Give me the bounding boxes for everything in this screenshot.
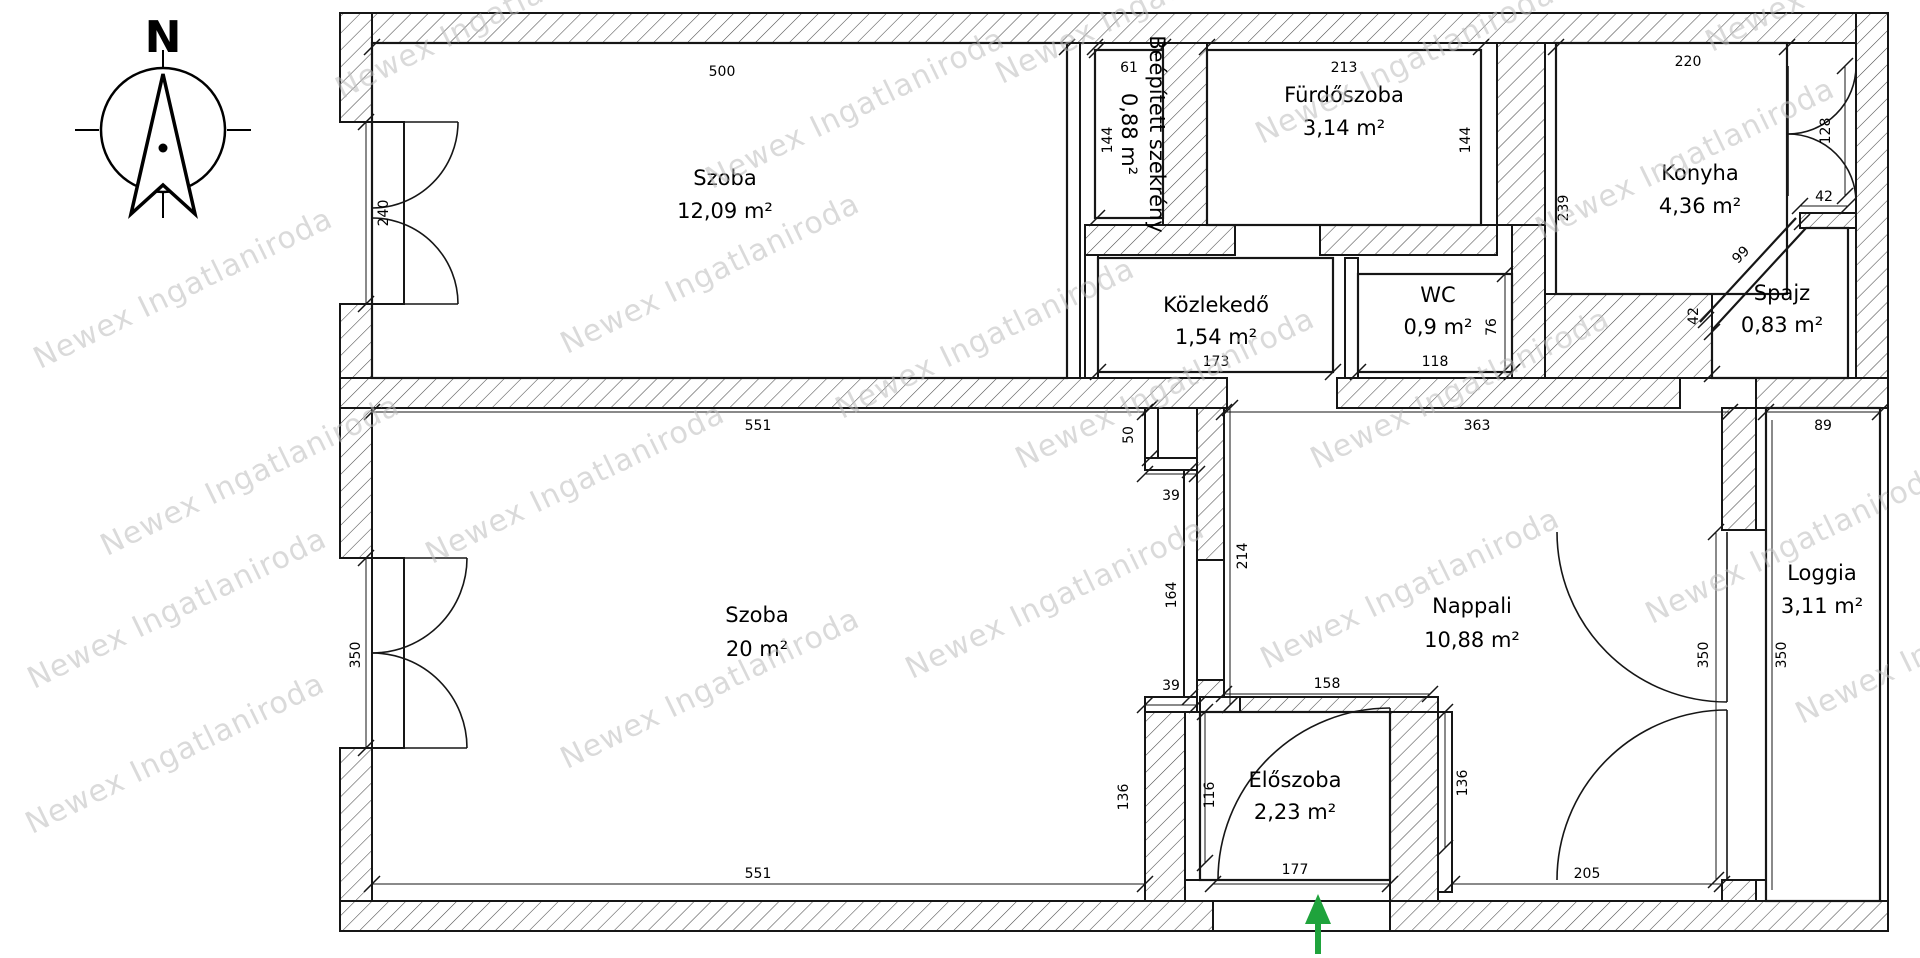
dim-350-loggia: 350 — [1774, 642, 1790, 669]
dim-205: 205 — [1574, 866, 1601, 882]
room-label-spajz: Spajz — [1754, 281, 1810, 305]
dim-39-upper: 39 — [1162, 488, 1180, 504]
room-label-furdoszoba: Fürdőszoba — [1284, 83, 1404, 107]
floor-plan-page: N — [0, 0, 1920, 958]
dim-76: 76 — [1484, 318, 1500, 336]
dim-89: 89 — [1814, 418, 1832, 434]
room-label-szoba1: Szoba — [693, 166, 756, 190]
dim-173: 173 — [1203, 354, 1230, 370]
room-label-kozlekedo: Közlekedő — [1163, 293, 1269, 317]
dim-220: 220 — [1675, 54, 1702, 70]
dim-350-nappali: 350 — [1696, 642, 1712, 669]
room-area-eloszoba: 2,23 m² — [1254, 800, 1336, 824]
door-eloszoba — [1218, 708, 1390, 880]
floor-plan-drawing: N — [0, 0, 1920, 958]
dim-240: 240 — [376, 200, 392, 227]
dim-39-lower: 39 — [1162, 678, 1180, 694]
door-nappali-loggia — [1557, 532, 1727, 880]
dim-158: 158 — [1314, 676, 1341, 692]
room-label-szekreny: Beépített szekrény — [1145, 35, 1169, 233]
dim-350-window: 350 — [348, 642, 364, 669]
room-area-nappali: 10,88 m² — [1424, 628, 1520, 652]
room-label-loggia: Loggia — [1787, 561, 1857, 585]
dim-42-top: 42 — [1815, 189, 1833, 205]
room-area-szoba2: 20 m² — [726, 637, 788, 661]
dim-42-left: 42 — [1686, 307, 1702, 325]
dimension-labels: 500 240 61 144 213 144 220 239 128 42 99… — [348, 54, 1834, 882]
dim-99: 99 — [1729, 243, 1753, 267]
dim-144-szekreny: 144 — [1100, 127, 1116, 154]
room-area-wc: 0,9 m² — [1404, 315, 1473, 339]
room-area-loggia: 3,11 m² — [1781, 594, 1863, 618]
dim-213: 213 — [1331, 60, 1358, 76]
dim-551-top: 551 — [745, 418, 772, 434]
room-label-nappali: Nappali — [1432, 594, 1512, 618]
dim-363: 363 — [1464, 418, 1491, 434]
room-area-kozlekedo: 1,54 m² — [1175, 325, 1257, 349]
dim-177: 177 — [1282, 862, 1309, 878]
room-label-szoba2: Szoba — [725, 603, 788, 627]
dim-128: 128 — [1818, 118, 1834, 145]
dim-144-furdo: 144 — [1458, 127, 1474, 154]
compass: N — [75, 12, 251, 218]
dim-136-left: 136 — [1116, 784, 1132, 811]
dim-61: 61 — [1120, 60, 1138, 76]
dim-136-right: 136 — [1455, 770, 1471, 797]
room-label-wc: WC — [1420, 283, 1455, 307]
dim-500: 500 — [709, 64, 736, 80]
room-area-spajz: 0,83 m² — [1741, 313, 1823, 337]
compass-center-dot — [159, 144, 168, 153]
dim-164: 164 — [1164, 582, 1180, 609]
dim-116: 116 — [1202, 782, 1218, 809]
room-area-szekreny: 0,88 m² — [1117, 93, 1141, 175]
room-label-eloszoba: Előszoba — [1249, 768, 1342, 792]
room-area-furdoszoba: 3,14 m² — [1303, 116, 1385, 140]
room-area-konyha: 4,36 m² — [1659, 194, 1741, 218]
dim-239: 239 — [1556, 195, 1572, 222]
dimension-lines — [366, 66, 1880, 890]
windows-doors — [372, 66, 1856, 880]
dim-551-bottom: 551 — [745, 866, 772, 882]
dim-118: 118 — [1422, 354, 1449, 370]
room-area-szoba1: 12,09 m² — [677, 199, 773, 223]
dim-50: 50 — [1121, 426, 1137, 444]
compass-north-label: N — [145, 12, 182, 63]
dim-214: 214 — [1235, 543, 1251, 570]
room-label-konyha: Konyha — [1661, 161, 1739, 185]
